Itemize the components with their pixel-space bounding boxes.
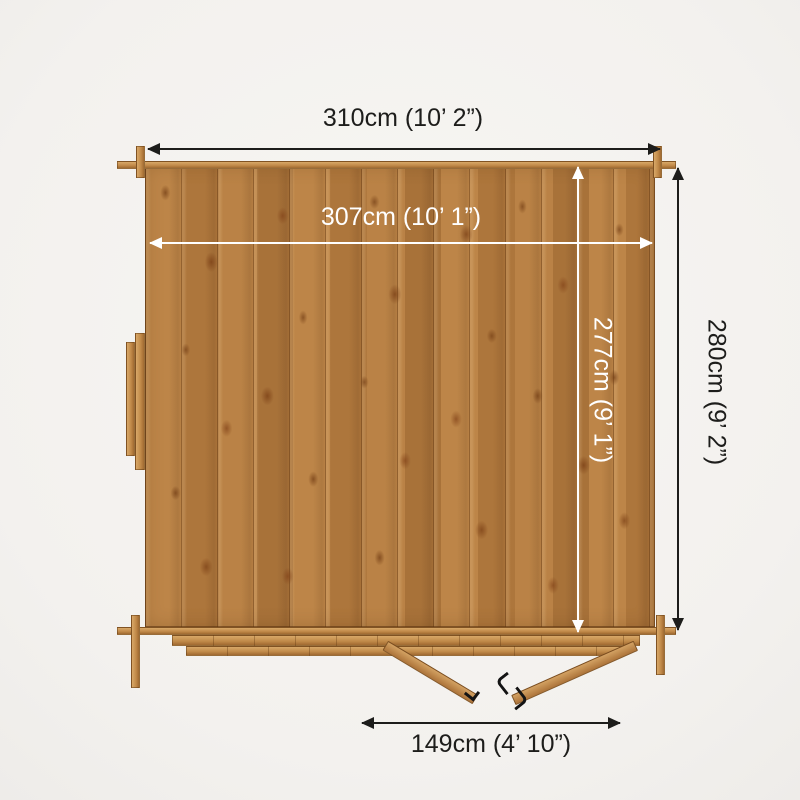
arrowhead-left-icon — [149, 237, 162, 249]
corner-log-bottom-right — [656, 615, 665, 675]
arrowhead-right-icon — [640, 237, 653, 249]
external-depth-line — [677, 168, 679, 630]
internal-width-label: 307cm (10’ 1”) — [321, 202, 481, 233]
front-wall-plank-upper — [172, 635, 640, 646]
side-window-shutter — [126, 342, 135, 456]
top-wall-beam — [117, 161, 676, 169]
external-depth-label: 280cm (9’ 2”) — [700, 319, 731, 465]
arrowhead-up-icon — [572, 166, 584, 179]
arrowhead-left-icon — [147, 143, 160, 155]
corner-log-bottom-left — [131, 615, 140, 688]
door-width-label: 149cm (4’ 10”) — [411, 729, 571, 760]
right-door-handle-icon — [492, 670, 530, 711]
door-width-line — [362, 722, 620, 724]
arrowhead-down-icon — [672, 618, 684, 631]
arrowhead-left-icon — [361, 717, 374, 729]
external-width-line — [148, 148, 660, 150]
bottom-wall-beam — [117, 627, 676, 635]
cabin-dimension-diagram: 310cm (10’ 2”) 307cm (10’ 1”) 277cm (9’ … — [0, 0, 800, 800]
arrowhead-right-icon — [648, 143, 661, 155]
arrowhead-down-icon — [572, 620, 584, 633]
side-window-frame — [135, 333, 145, 470]
external-width-label: 310cm (10’ 2”) — [323, 103, 483, 134]
internal-depth-label: 277cm (9’ 1”) — [586, 317, 617, 463]
internal-depth-line — [577, 167, 579, 632]
arrowhead-up-icon — [672, 167, 684, 180]
corner-log-top-left — [136, 146, 145, 178]
arrowhead-right-icon — [608, 717, 621, 729]
